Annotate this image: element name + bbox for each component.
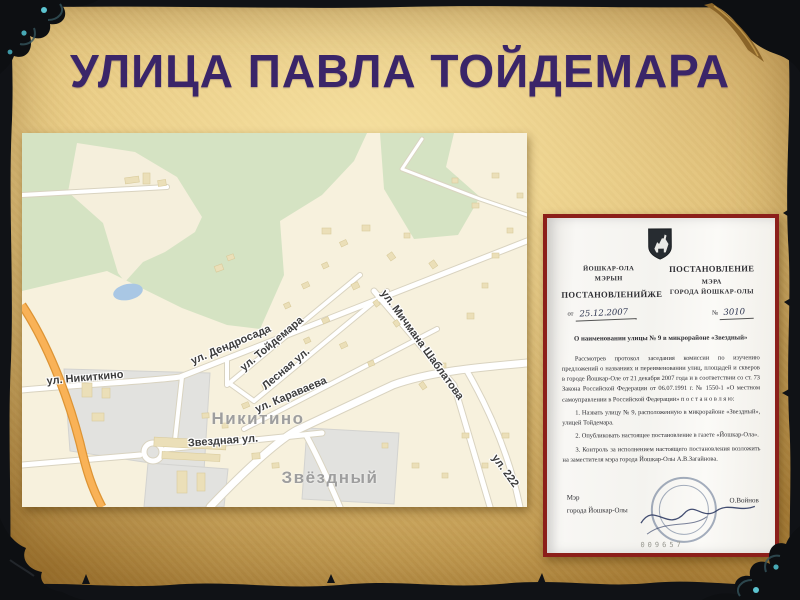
- decree-document: ЙОШКАР-ОЛА МЭРЫН ПОСТАНОВЛЕНИЙЖЕ ПОСТАНО…: [543, 214, 779, 557]
- signer-role-line2: города Йошкар-Олы: [567, 504, 628, 517]
- org-name-mari-2: МЭРЫН: [561, 274, 656, 284]
- document-header-left: ЙОШКАР-ОЛА МЭРЫН ПОСТАНОВЛЕНИЙЖЕ: [561, 264, 656, 299]
- date-value-handwritten: 25.12.2007: [575, 307, 636, 322]
- frame-edge-top: [0, 0, 800, 8]
- map-graphic: [22, 133, 527, 507]
- number-field: № 3010: [712, 307, 754, 319]
- decree-paper: ЙОШКАР-ОЛА МЭРЫН ПОСТАНОВЛЕНИЙЖЕ ПОСТАНО…: [546, 217, 776, 554]
- slide-title: УЛИЦА ПАВЛА ТОЙДЕМАРА: [0, 44, 800, 98]
- date-field: от 25.12.2007: [567, 308, 635, 320]
- presentation-slide: УЛИЦА ПАВЛА ТОЙДЕМАРА: [0, 0, 800, 600]
- document-subject: О наименовании улицы № 9 в микрорайоне «…: [562, 334, 760, 342]
- number-value-handwritten: 3010: [720, 306, 754, 319]
- number-prefix: №: [712, 309, 718, 316]
- document-header: ЙОШКАР-ОЛА МЭРЫН ПОСТАНОВЛЕНИЙЖЕ ПОСТАНО…: [561, 263, 759, 299]
- body-paragraph: 1. Назвать улицу № 9, расположенную в ми…: [562, 407, 760, 429]
- body-paragraph: 3. Контроль за исполнением настоящего по…: [562, 444, 760, 466]
- map-image: ул. Никиткино ул. Дендросада ул. Тойдема…: [22, 133, 527, 507]
- document-header-right: ПОСТАНОВЛЕНИЕ МЭРА ГОРОДА ЙОШКАР-ОЛЫ: [664, 263, 759, 298]
- place-label-nikitino: Никитино: [211, 409, 304, 429]
- doc-type-mari: ПОСТАНОВЛЕНИЙЖЕ: [561, 289, 656, 300]
- signer-role: Мэр города Йошкар-Олы: [567, 491, 628, 517]
- doc-type-russian: ПОСТАНОВЛЕНИЕ: [664, 263, 759, 274]
- signer-role-line1: Мэр: [567, 491, 628, 504]
- document-serial-number: 009657: [548, 540, 776, 550]
- body-paragraph: Рассмотрев протокол заседания комиссии п…: [562, 353, 760, 406]
- date-number-row: от 25.12.2007 № 3010: [561, 307, 759, 320]
- frame-bottom-spikes: [82, 573, 546, 584]
- date-prefix: от: [567, 310, 573, 317]
- signer-name: О.Войнов: [729, 496, 758, 504]
- coat-of-arms-icon: [647, 228, 673, 260]
- document-body: Рассмотрев протокол заседания комиссии п…: [562, 353, 761, 466]
- body-paragraph: 2. Опубликовать настоящее постановление …: [562, 431, 760, 443]
- frame-edge-bottom: [0, 582, 800, 600]
- org-name-russian-2: ГОРОДА ЙОШКАР-ОЛЫ: [664, 287, 759, 297]
- frame-right-notches: [782, 208, 791, 398]
- map-greenfield-2: [380, 133, 480, 239]
- place-label-zvezdny: Звёздный: [281, 468, 378, 488]
- frame-corner-bottom-left: [0, 518, 86, 600]
